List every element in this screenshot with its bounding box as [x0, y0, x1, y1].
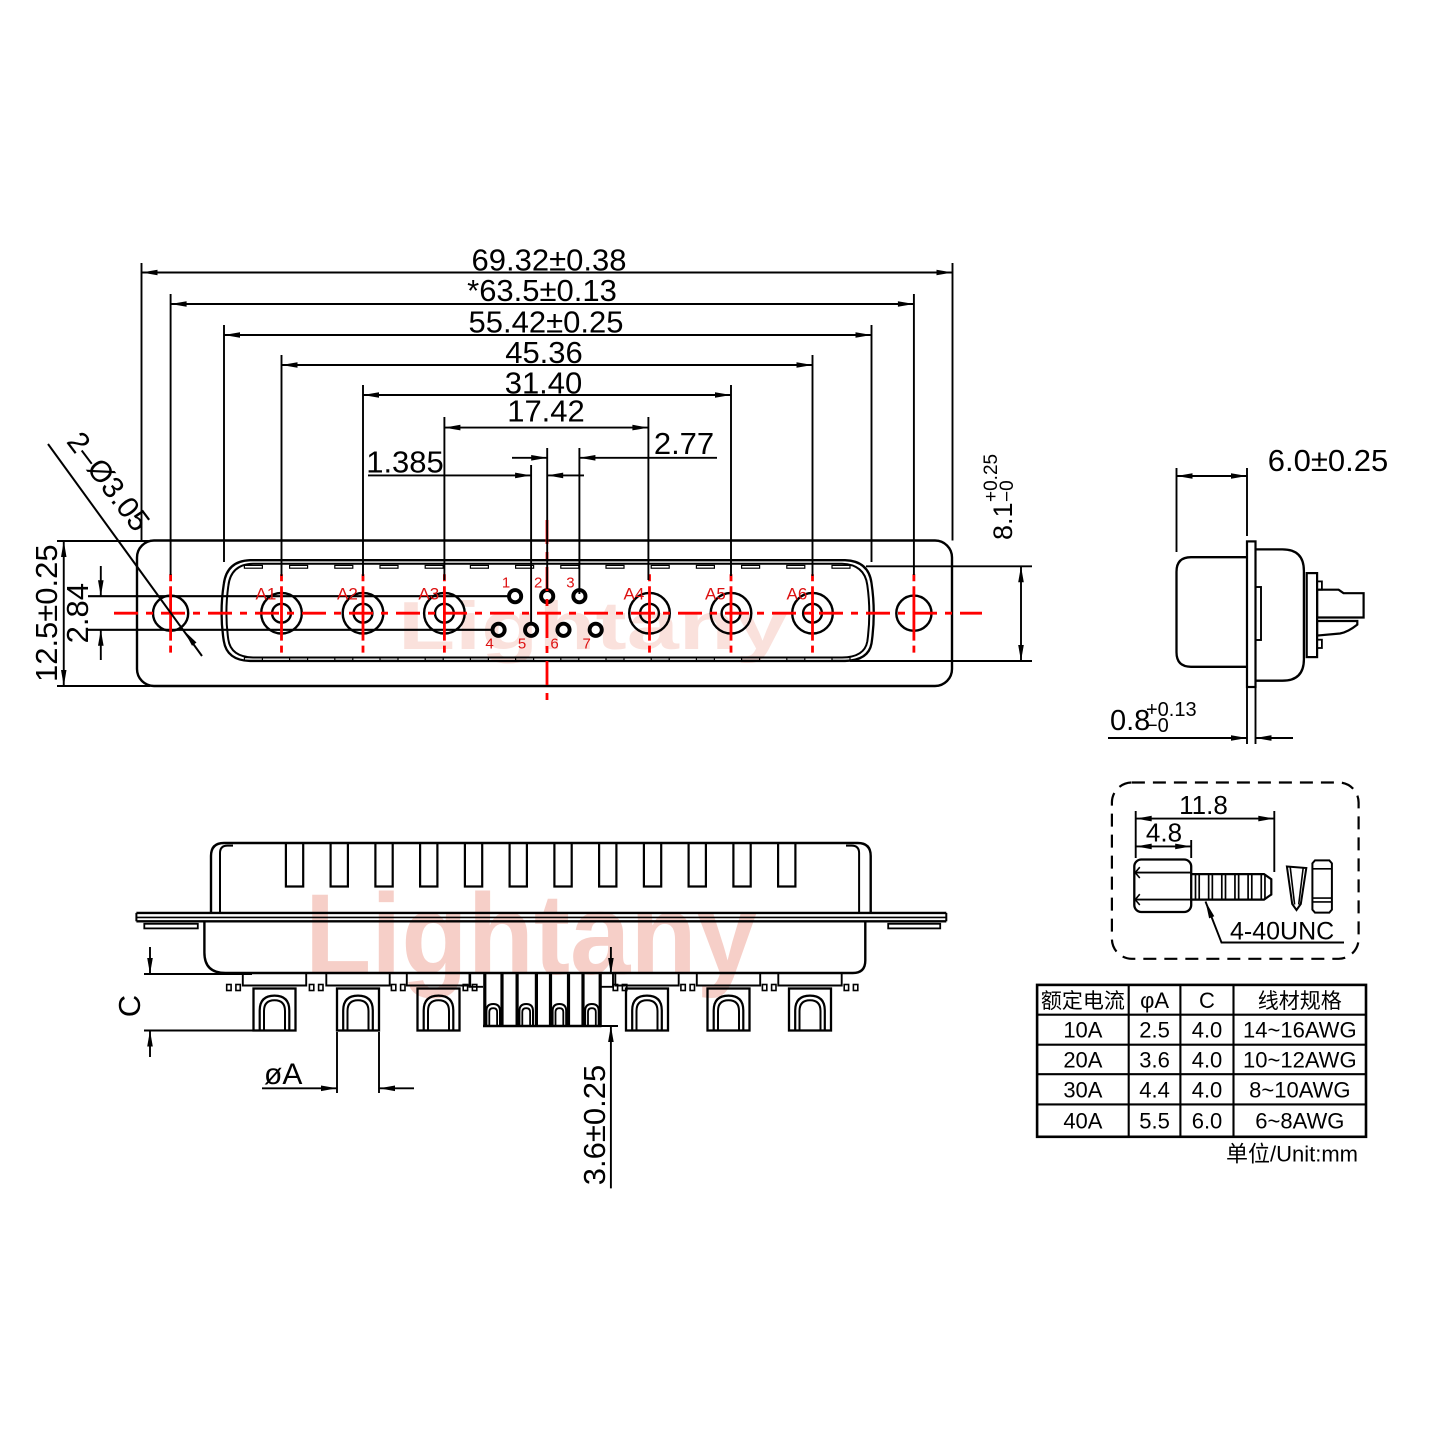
svg-text:4.4: 4.4 [1139, 1077, 1170, 1102]
svg-text:12.5±0.25: 12.5±0.25 [29, 544, 64, 682]
svg-text:17.42: 17.42 [507, 394, 585, 429]
svg-text:A3: A3 [418, 585, 439, 604]
svg-text:4.8: 4.8 [1146, 818, 1182, 848]
svg-text:30A: 30A [1063, 1077, 1102, 1102]
svg-text:8~10AWG: 8~10AWG [1249, 1077, 1350, 1102]
svg-text:6.0: 6.0 [1192, 1108, 1223, 1133]
svg-text:4.0: 4.0 [1192, 1048, 1223, 1073]
svg-text:2.77: 2.77 [654, 426, 714, 461]
svg-text:2: 2 [534, 575, 542, 592]
svg-text:8.1: 8.1 [988, 502, 1018, 540]
svg-text:3.6±0.25: 3.6±0.25 [577, 1065, 612, 1185]
svg-text:10~12AWG: 10~12AWG [1243, 1048, 1357, 1073]
svg-text:7: 7 [583, 636, 591, 653]
svg-text:4.0: 4.0 [1192, 1077, 1223, 1102]
svg-text:A5: A5 [705, 585, 726, 604]
svg-text:C: C [1199, 988, 1215, 1013]
svg-text:3: 3 [566, 575, 574, 592]
svg-text:φA: φA [1140, 988, 1169, 1013]
svg-text:额定电流: 额定电流 [1041, 990, 1125, 1013]
svg-text:线材规格: 线材规格 [1258, 990, 1342, 1013]
svg-text:A4: A4 [624, 585, 645, 604]
svg-text:40A: 40A [1063, 1108, 1102, 1133]
svg-text:A6: A6 [787, 585, 808, 604]
svg-text:4.0: 4.0 [1192, 1018, 1223, 1043]
svg-text:Lightany: Lightany [305, 871, 757, 999]
svg-text:*63.5±0.13: *63.5±0.13 [467, 273, 617, 308]
svg-text:A2: A2 [337, 585, 358, 604]
svg-text:5: 5 [518, 636, 526, 653]
svg-text:单位/Unit:mm: 单位/Unit:mm [1226, 1142, 1358, 1167]
svg-text:10A: 10A [1063, 1018, 1102, 1043]
svg-text:+0.25: +0.25 [981, 454, 1002, 502]
svg-text:14~16AWG: 14~16AWG [1243, 1018, 1357, 1043]
svg-text:C: C [112, 995, 147, 1017]
svg-text:A1: A1 [256, 585, 277, 604]
svg-text:1.385: 1.385 [366, 445, 444, 480]
svg-text:20A: 20A [1063, 1048, 1102, 1073]
svg-text:3.6: 3.6 [1139, 1048, 1170, 1073]
svg-text:6: 6 [550, 636, 558, 653]
svg-text:6~8AWG: 6~8AWG [1255, 1108, 1344, 1133]
svg-text:5.5: 5.5 [1139, 1108, 1170, 1133]
svg-text:øA: øA [264, 1058, 302, 1091]
svg-text:1: 1 [502, 575, 510, 592]
svg-text:4: 4 [485, 636, 493, 653]
svg-text:0.8: 0.8 [1110, 705, 1150, 737]
svg-text:11.8: 11.8 [1179, 790, 1228, 820]
svg-text:4-40UNC: 4-40UNC [1230, 918, 1334, 946]
svg-text:2.5: 2.5 [1139, 1018, 1170, 1043]
svg-text:−0: −0 [1146, 715, 1169, 737]
svg-text:2.84: 2.84 [60, 583, 95, 643]
svg-text:6.0±0.25: 6.0±0.25 [1268, 443, 1388, 478]
